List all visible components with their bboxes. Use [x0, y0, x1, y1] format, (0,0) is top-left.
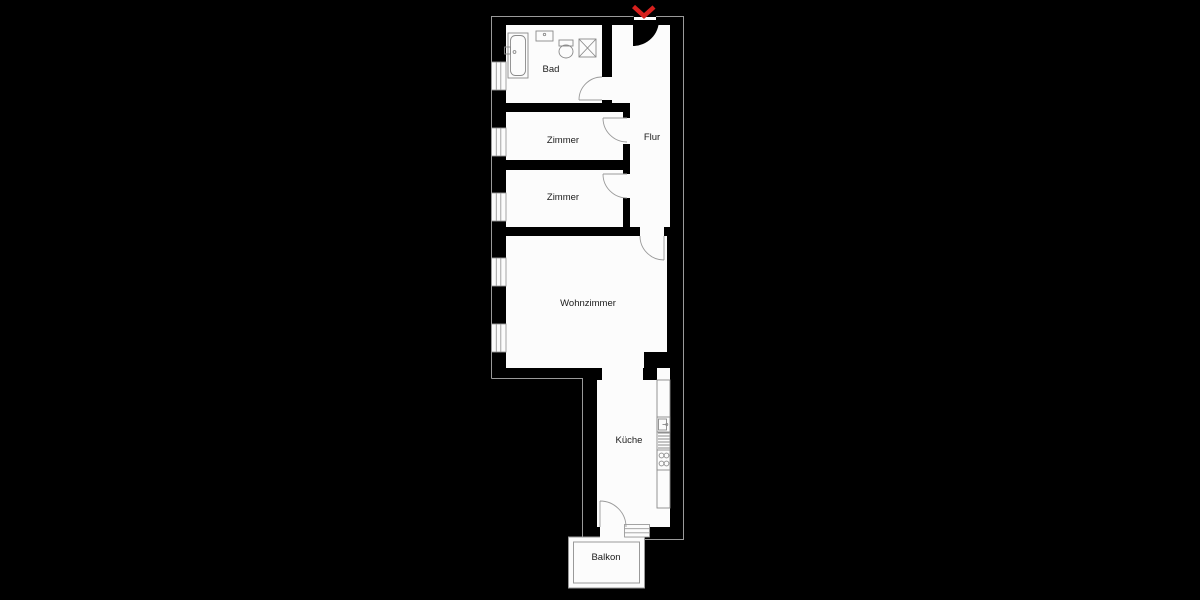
wall-notch: [644, 352, 667, 368]
label-flur: Flur: [644, 132, 660, 143]
window-zimmer1: [492, 128, 507, 156]
window-zimmer2: [492, 193, 507, 221]
room-kueche: [597, 380, 670, 527]
label-zimmer-1: Zimmer: [547, 135, 579, 146]
room-flur-lower: [630, 25, 670, 227]
corridor-to-kitchen: [602, 368, 643, 380]
label-wohnzimmer: Wohnzimmer: [560, 298, 616, 309]
label-balkon: Balkon: [591, 552, 620, 563]
balcony-steps: [625, 525, 650, 538]
label-bad: Bad: [543, 64, 560, 75]
wohnzimmer-door-opening: [640, 227, 664, 236]
label-zimmer-2: Zimmer: [547, 192, 579, 203]
window-bad: [492, 62, 507, 90]
zimmer2-door-opening: [623, 174, 630, 198]
window-wohnzimmer-2: [492, 324, 507, 352]
balcony-door-opening: [600, 527, 625, 538]
label-kueche: Küche: [616, 435, 643, 446]
floor-plan-canvas: Bad Zimmer Zimmer Flur Wohnzimmer Küche …: [0, 0, 1200, 600]
window-wohnzimmer-1: [492, 258, 507, 286]
counter-niche: [657, 368, 670, 380]
bad-door-opening: [602, 77, 612, 100]
floor-plan-svg: Bad Zimmer Zimmer Flur Wohnzimmer Küche …: [0, 0, 1200, 600]
zimmer1-door-opening: [623, 118, 630, 144]
